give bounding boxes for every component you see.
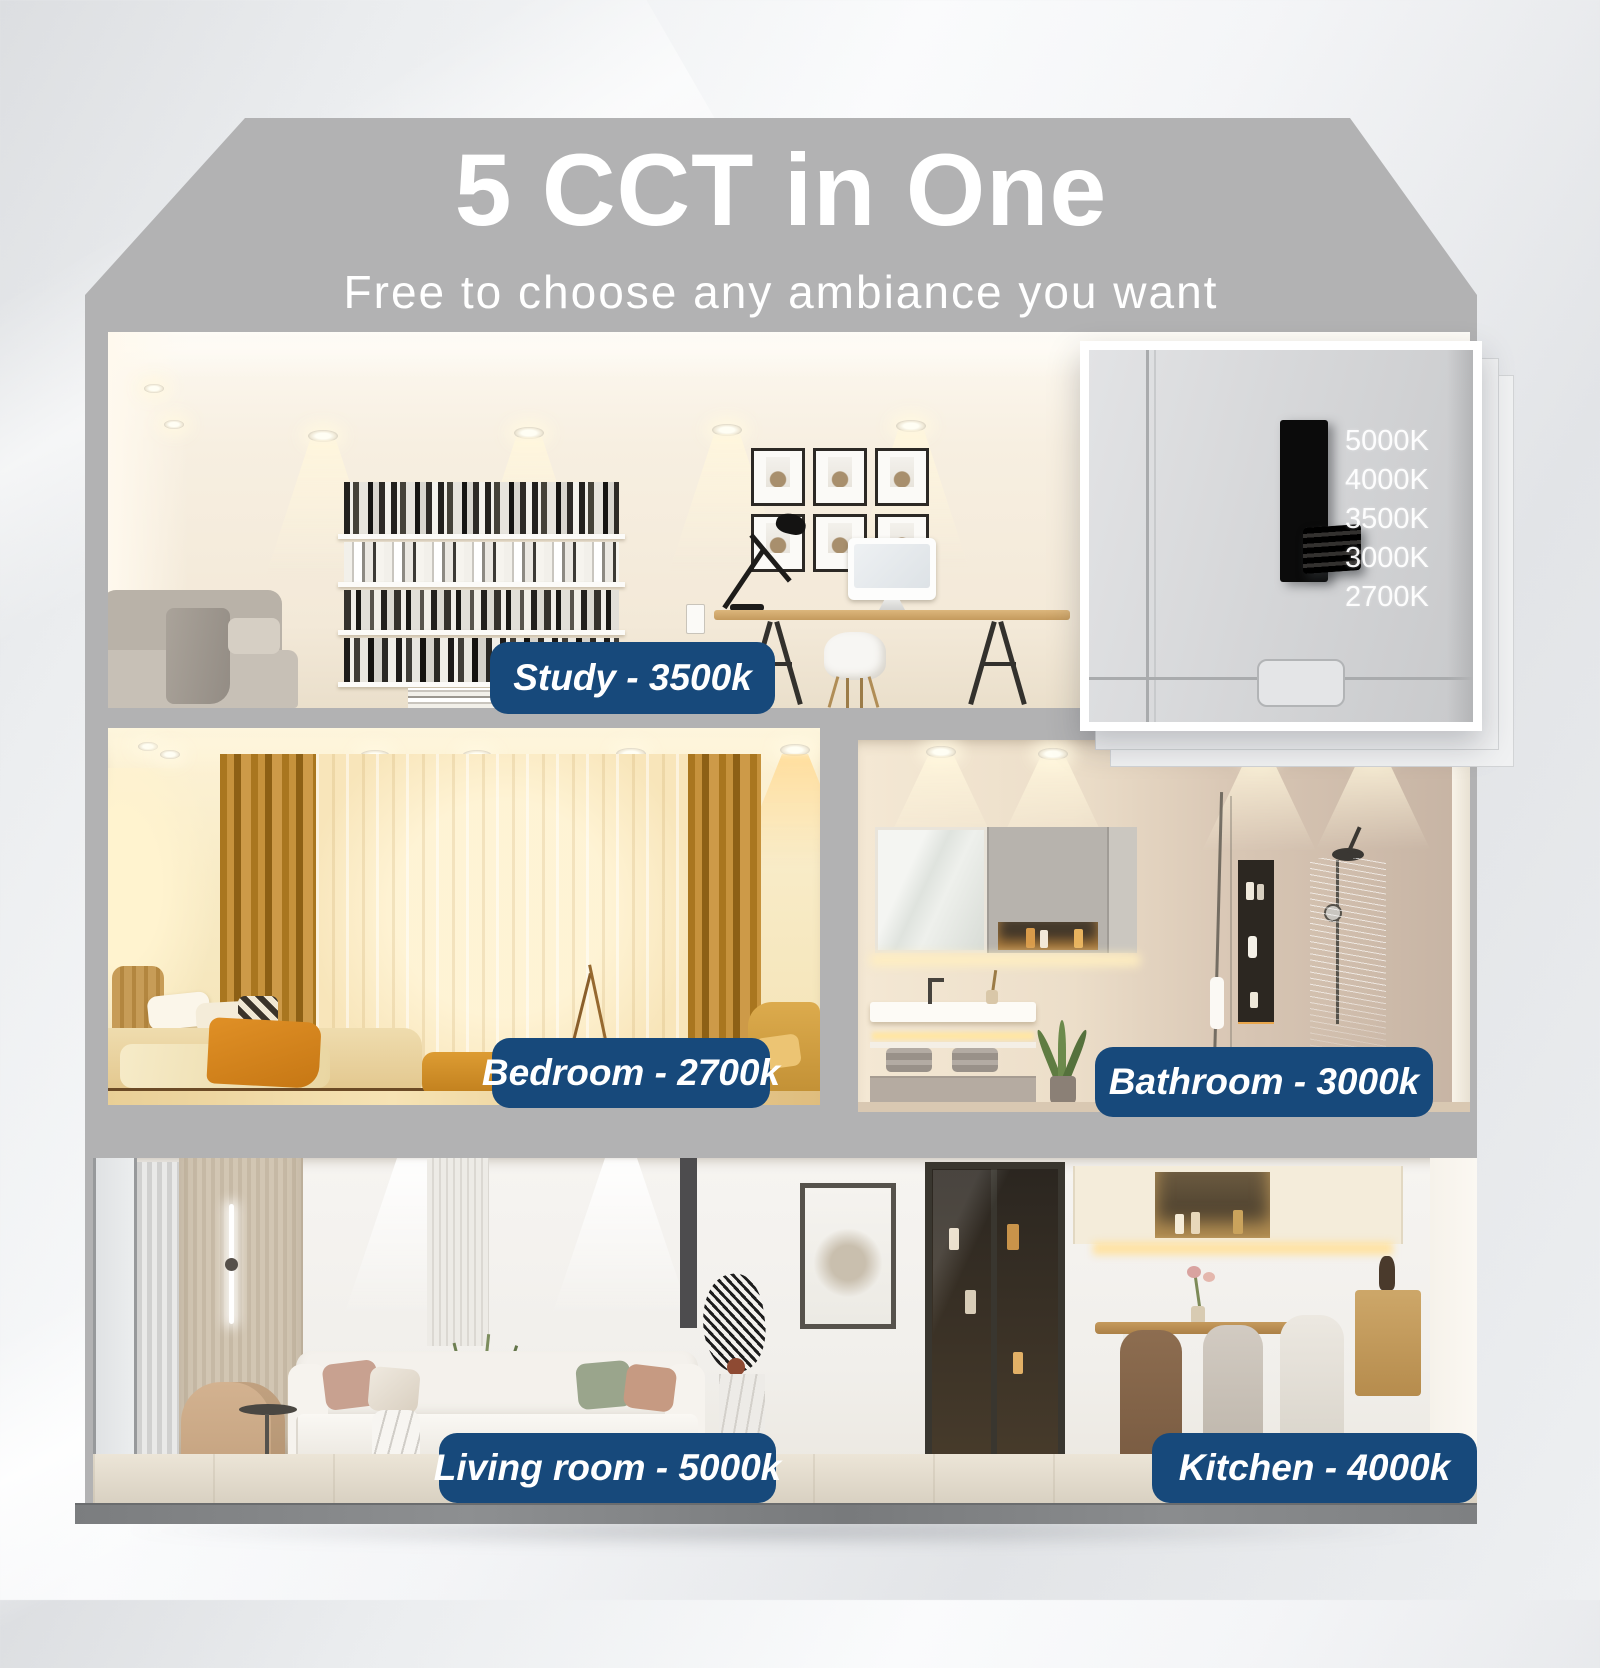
room-badge-bedroom: Bedroom - 2700k xyxy=(492,1038,770,1108)
imac-display xyxy=(854,544,930,588)
downlight xyxy=(144,384,164,393)
chair-leg xyxy=(846,678,849,708)
cct-option: 4000K xyxy=(1345,461,1455,500)
slat-panel xyxy=(427,1158,489,1346)
cabinet-glass-sheen xyxy=(933,1170,1057,1460)
chair-leg xyxy=(868,676,880,708)
led-strip xyxy=(872,1032,1034,1040)
niche-bottle xyxy=(1257,884,1264,900)
wall-cct-switch xyxy=(686,604,705,634)
page-subtitle: Free to choose any ambiance you want xyxy=(85,265,1477,319)
niche-bottle xyxy=(1074,929,1083,948)
mirror xyxy=(875,827,987,953)
picture-frame xyxy=(813,448,867,506)
desk-trestle-bar xyxy=(982,662,1016,666)
downlight xyxy=(160,750,180,759)
lit-niche xyxy=(998,922,1098,950)
niche-bottle xyxy=(1248,936,1257,958)
niche-bottle xyxy=(1026,928,1035,948)
room-badge-bathroom: Bathroom - 3000k xyxy=(1095,1047,1433,1117)
towel-stack xyxy=(952,1048,998,1072)
study-sofa-blanket xyxy=(166,608,230,704)
kitchen-lit-niche xyxy=(1155,1172,1270,1238)
wall-knob xyxy=(225,1258,238,1271)
cct-option: 5000K xyxy=(1345,422,1455,461)
niche-bottle xyxy=(1233,1210,1243,1234)
room-badge-kitchen: Kitchen - 4000k xyxy=(1152,1433,1477,1503)
headline-block: 5 CCT in One Free to choose any ambiance… xyxy=(85,132,1477,319)
light-cone xyxy=(541,1158,701,1348)
niche-glassware xyxy=(1175,1214,1184,1234)
plate-tab xyxy=(1257,659,1345,707)
room-badge-study: Study - 3500k xyxy=(490,642,775,714)
cabinet-side xyxy=(1109,827,1137,953)
flower-bloom xyxy=(1203,1272,1215,1282)
tall-cabinet xyxy=(1452,740,1470,1112)
stone-base-strip xyxy=(75,1503,1477,1524)
pillow-terracotta xyxy=(623,1363,678,1413)
light-cone xyxy=(1308,756,1438,866)
water-spray xyxy=(1310,858,1386,1070)
shelf-board xyxy=(338,534,625,539)
hanging-towel xyxy=(1210,977,1224,1029)
towel-stack xyxy=(886,1048,932,1072)
bookshelf-row xyxy=(344,482,619,534)
downlight xyxy=(138,742,158,751)
plate-seam xyxy=(1154,350,1156,722)
shelf-board xyxy=(338,582,625,587)
bookshelf-row xyxy=(344,590,619,630)
room-badge-living-room: Living room - 5000k xyxy=(439,1433,776,1503)
floor-book-stack xyxy=(408,688,500,708)
sheer-gray-curtain xyxy=(137,1162,179,1492)
niche-bottle xyxy=(1040,930,1048,948)
picture-frame xyxy=(875,448,929,506)
study-sofa-cushion xyxy=(228,618,280,654)
niche-bottle xyxy=(1250,992,1258,1008)
shelf-board xyxy=(338,630,625,635)
switch-plate-photo: 5000K 4000K 3500K 3000K 2700K xyxy=(1080,341,1482,731)
wall-art-frame xyxy=(800,1183,896,1329)
cct-option-list: 5000K 4000K 3500K 3000K 2700K xyxy=(1345,422,1455,617)
chair-leg xyxy=(828,676,840,708)
plant-leaf xyxy=(1063,1028,1090,1079)
faucet-spout xyxy=(928,978,944,982)
light-cone xyxy=(1194,758,1324,868)
downlight xyxy=(164,420,184,429)
cct-option: 2700K xyxy=(1345,578,1455,617)
desk-top xyxy=(714,610,1070,620)
orange-throw xyxy=(206,1017,321,1089)
chair-leg xyxy=(860,678,863,708)
page-title: 5 CCT in One xyxy=(85,132,1477,249)
cct-option: 3500K xyxy=(1345,500,1455,539)
vanity-counter xyxy=(870,1002,1036,1022)
niche-glassware xyxy=(1191,1212,1200,1234)
dark-accent-strip xyxy=(680,1158,697,1328)
figurine xyxy=(1379,1256,1395,1290)
wood-console xyxy=(1355,1290,1421,1396)
niche-bottle xyxy=(1246,882,1254,900)
pillow-patterned xyxy=(367,1366,421,1414)
counter-vase xyxy=(986,990,998,1004)
flower-bloom xyxy=(1187,1266,1201,1278)
mirror-underglow xyxy=(870,954,1140,966)
glass-door xyxy=(93,1158,137,1505)
desk-chair-shell xyxy=(824,632,886,680)
cct-switch-inset: 5000K 4000K 3500K 3000K 2700K xyxy=(1080,341,1482,731)
picture-frame xyxy=(751,448,805,506)
cct-option: 3000K xyxy=(1345,539,1455,578)
bookshelf-row xyxy=(344,542,619,582)
under-cabinet-glow xyxy=(1093,1242,1393,1255)
plate-seam xyxy=(1146,350,1149,722)
